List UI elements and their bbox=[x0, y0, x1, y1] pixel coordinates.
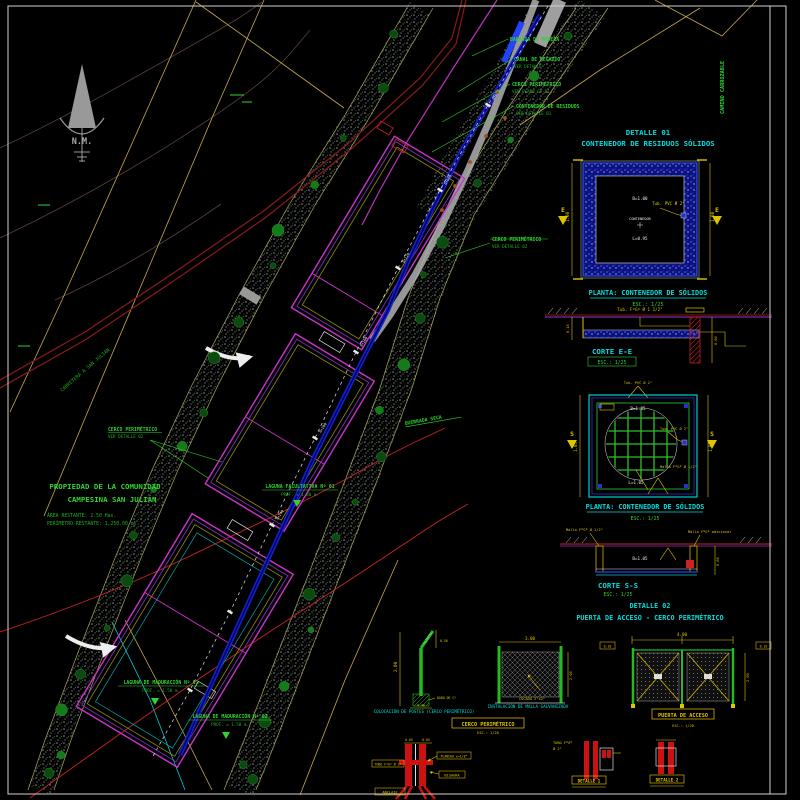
d5-title2: PUERTA DE ACCESO - CERCO PERIMÉTRICO bbox=[576, 613, 723, 622]
gate-dim-top: 4.00 bbox=[677, 632, 688, 637]
d1-marker-left: E bbox=[561, 207, 565, 214]
svg-text:LAGUNA FACULTATIVA Nº 01: LAGUNA FACULTATIVA Nº 01 bbox=[265, 484, 334, 490]
svg-text:LAGUNA DE MADURACIÓN Nº 01: LAGUNA DE MADURACIÓN Nº 01 bbox=[123, 679, 198, 686]
d3-scale: ESC.: 1/25 bbox=[631, 516, 660, 522]
post-dim-base: 0.40 bbox=[417, 704, 425, 708]
svg-text:VER DETALLE 02: VER DETALLE 02 bbox=[108, 434, 144, 439]
detail-gate-titles: DETALLE 02 PUERTA DE ACCESO - CERCO PERI… bbox=[576, 602, 723, 622]
d1-txt2: CONTENEDOR bbox=[629, 217, 651, 221]
detail-corte-ss: Malla FºGº Ø 1/2" Malla FºGº adicional B… bbox=[560, 527, 772, 598]
d3-marker-left: S bbox=[570, 431, 574, 438]
det1-label: DETALLE 1 bbox=[578, 779, 601, 784]
detail-access-gate: 4.00 0.10 0.10 2.00 PUERTA D bbox=[600, 632, 771, 728]
d4-scale: ESC.: 1/25 bbox=[604, 592, 633, 598]
cerco-box-text: CERCO PERIMÉTRICO bbox=[461, 720, 514, 728]
cad-sheet: 0+040 0+080 0+120 0+160 0+200 0+240 bbox=[0, 0, 800, 800]
svg-text:VER DETALLE 01: VER DETALLE 01 bbox=[516, 111, 552, 116]
detail-1: TUBO FºGº Ø 2" DETALLE 1 bbox=[553, 741, 621, 787]
gate-scale: ESC.: 1/20 bbox=[672, 724, 694, 728]
svg-text:PROF. = 1.80 m.: PROF. = 1.80 m. bbox=[281, 492, 319, 497]
property-line2: CAMPESINA SAN JULIÁN bbox=[68, 495, 158, 504]
gate-tag-left: 0.10 bbox=[604, 645, 612, 649]
detail-fence-post: 0.40 2.00 0.50 DADO DE Cº COLOCACIÓN DE … bbox=[374, 630, 475, 714]
detail-corte-ee: Tub. FºGº Ø 1 1/2" 0.60 0.15 CORTE E-E E… bbox=[545, 307, 772, 366]
gate-dim-right: 2.00 bbox=[746, 673, 750, 682]
d3-dim-left: 1.05 bbox=[573, 441, 578, 452]
detail-container-plan2: Tub. PVC Ø 2" S S bbox=[567, 380, 717, 522]
d1-caption: PLANTA: CONTENEDOR DE SÓLIDOS bbox=[589, 288, 708, 297]
d1-pipe-label: Tub. PVC Ø 2" bbox=[652, 201, 685, 206]
svg-text:CERCO PERIMÉTRICO: CERCO PERIMÉTRICO bbox=[108, 425, 157, 433]
svg-text:PROF. = 1.50 m.: PROF. = 1.50 m. bbox=[211, 722, 249, 727]
post-dim-top: 0.50 bbox=[440, 639, 448, 643]
d1-txt1: B=1.00 bbox=[632, 196, 648, 201]
d3-pipe: Tub. PVC Ø 2" bbox=[660, 426, 688, 431]
station-label: 0+240 bbox=[275, 509, 284, 520]
d5-title1: DETALLE 02 bbox=[630, 602, 671, 610]
d1-marker-right: E bbox=[715, 207, 719, 214]
d4-txt: B=1.05 bbox=[632, 556, 648, 561]
d2-scale: ESC.: 1/25 bbox=[598, 360, 627, 366]
centerline-stations bbox=[187, 103, 491, 693]
svg-text:VER DETALLE: VER DETALLE bbox=[514, 64, 542, 69]
hinge-dim1: 0.05 bbox=[405, 738, 413, 742]
det1-c2: Ø 2" bbox=[553, 746, 562, 751]
hinge-call-r1: PLANCHA e=1/8" bbox=[441, 755, 468, 759]
d2-caption: CORTE E-E bbox=[592, 347, 632, 356]
d2-dim2: 0.15 bbox=[566, 324, 570, 333]
svg-text:CAMINO CARROZABLE: CAMINO CARROZABLE bbox=[720, 61, 726, 114]
d3-pipe-top: Tub. PVC Ø 2" bbox=[624, 380, 652, 385]
hinge-call-r2: BISAGRA bbox=[444, 774, 460, 778]
d4-caption: CORTE S-S bbox=[598, 581, 638, 590]
cerco-box-scale: ESC.: 1/20 bbox=[477, 731, 499, 735]
d1-title1: DETALLE 01 bbox=[626, 128, 671, 137]
d3-grid-label: Malla FºGº Ø 1/2" bbox=[660, 464, 697, 469]
d3-caption: PLANTA: CONTENEDOR DE SÓLIDOS bbox=[586, 502, 705, 511]
svg-text:LAGUNA DE MADURACIÓN Nº 02: LAGUNA DE MADURACIÓN Nº 02 bbox=[192, 713, 267, 720]
cerco-box-label: CERCO PERIMÉTRICO ESC.: 1/20 bbox=[452, 718, 524, 735]
d4-call1: Malla FºGº Ø 1/2" bbox=[566, 527, 603, 532]
property-sub1: ÁREA RESTANTE: 2.50 Has. bbox=[47, 512, 116, 519]
label-camino-vertical: CAMINO CARROZABLE bbox=[720, 61, 726, 114]
svg-text:VER PLANO CP-01: VER PLANO CP-01 bbox=[512, 89, 550, 94]
svg-text:BARANDA DE MADERA: BARANDA DE MADERA bbox=[510, 37, 559, 43]
detail-2: DETALLE 2 bbox=[650, 740, 684, 786]
detail-hinge: 0.05 0.05 TUBO FºGº Ø 2" PLANCHA e=1/8" … bbox=[372, 738, 471, 799]
d4-dim: 0.60 bbox=[716, 557, 720, 566]
mesh-note: COCADA 2"x2" bbox=[519, 697, 545, 701]
property-line1: PROPIEDAD DE LA COMUNIDAD bbox=[49, 482, 161, 491]
svg-text:QUEBRADA SECA: QUEBRADA SECA bbox=[404, 415, 442, 427]
details-column: DETALLE 01 CONTENEDOR DE RESIDUOS SÓLIDO… bbox=[372, 128, 772, 799]
det2-label: DETALLE 2 bbox=[656, 778, 679, 783]
mesh-dim-h: 2.00 bbox=[569, 671, 573, 680]
det1-c1: TUBO FºGº bbox=[553, 741, 572, 745]
label-quebrada: QUEBRADA SECA bbox=[404, 411, 461, 427]
d3-dim-top: 1.05 bbox=[708, 441, 713, 452]
gate-label: PUERTA DE ACCESO bbox=[658, 713, 708, 719]
d1-txt3: L=0.95 bbox=[632, 236, 648, 241]
d3-txt-top: B=1.05 bbox=[630, 406, 646, 411]
post-base-label: DADO DE Cº bbox=[437, 696, 456, 700]
svg-text:CARRETERA A SAN JULIÁN: CARRETERA A SAN JULIÁN bbox=[59, 346, 112, 393]
svg-text:VER DETALLE 02: VER DETALLE 02 bbox=[492, 244, 528, 249]
d4-call2: Malla FºGº adicional bbox=[688, 530, 731, 534]
post-caption: COLOCACIÓN DE POSTES (CERCO PERIMÉTRICO) bbox=[374, 709, 475, 714]
label-carretera: CARRETERA A SAN JULIÁN bbox=[59, 346, 112, 393]
property-sub2: PERÍMETRO RESTANTE: 1,250.00 ml. bbox=[47, 519, 139, 527]
north-arrow: N.M. bbox=[60, 64, 104, 162]
d1-title2: CONTENEDOR DE RESIDUOS SÓLIDOS bbox=[581, 139, 715, 148]
mesh-dim-w: 3.00 bbox=[525, 636, 536, 641]
north-label: N.M. bbox=[72, 137, 92, 147]
svg-text:PROF. = 1.50 m.: PROF. = 1.50 m. bbox=[142, 688, 180, 693]
d2-pipe-label: Tub. FºGº Ø 1 1/2" bbox=[617, 307, 662, 312]
d2-dim1: 0.60 bbox=[714, 336, 718, 345]
gate-tag-right: 0.10 bbox=[760, 645, 768, 649]
elevation-ticks bbox=[18, 95, 252, 346]
d3-txt-bot: L=1.05 bbox=[628, 480, 644, 485]
hinge-dim2: 0.05 bbox=[422, 738, 430, 742]
mesh-caption: INSTALACIÓN DE MALLA GALVANIZADA bbox=[488, 704, 569, 709]
hinge-call-left: TUBO FºGº Ø 2" bbox=[375, 762, 402, 767]
post-dim-h: 2.00 bbox=[393, 661, 398, 672]
d3-marker-right: S bbox=[710, 431, 714, 438]
detail-mesh-elevation: 3.00 2.00 COCADA 2"x2" INSTALACIÓN DE MA… bbox=[488, 636, 573, 709]
detail-container-plan: DETALLE 01 CONTENEDOR DE RESIDUOS SÓLIDO… bbox=[558, 128, 722, 308]
svg-text:CONTENEDOR DE RESIDUOS: CONTENEDOR DE RESIDUOS bbox=[516, 104, 580, 110]
